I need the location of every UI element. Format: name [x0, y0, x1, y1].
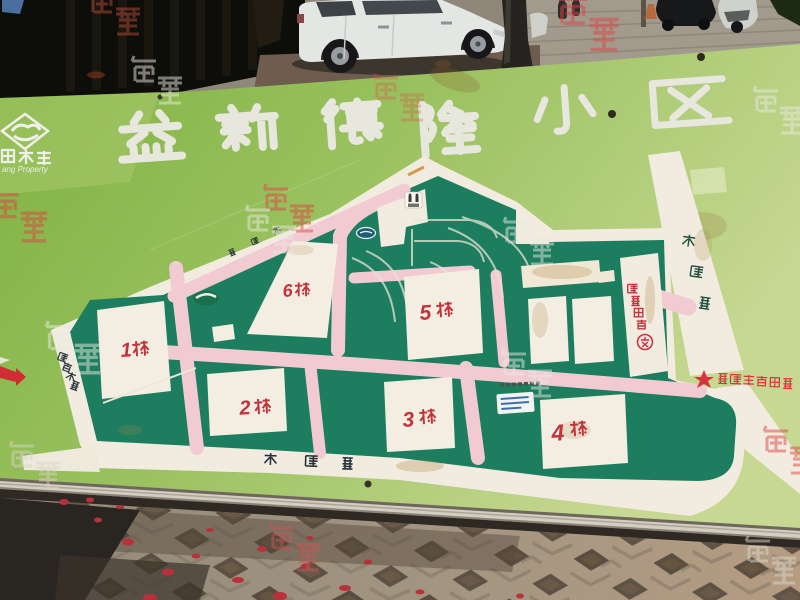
svg-text:2: 2: [238, 397, 252, 420]
svg-text:4: 4: [550, 419, 566, 446]
svg-text:ang Property: ang Property: [2, 165, 49, 174]
svg-text:3: 3: [402, 408, 416, 432]
svg-text:1: 1: [120, 339, 133, 362]
svg-text:5: 5: [419, 301, 433, 325]
